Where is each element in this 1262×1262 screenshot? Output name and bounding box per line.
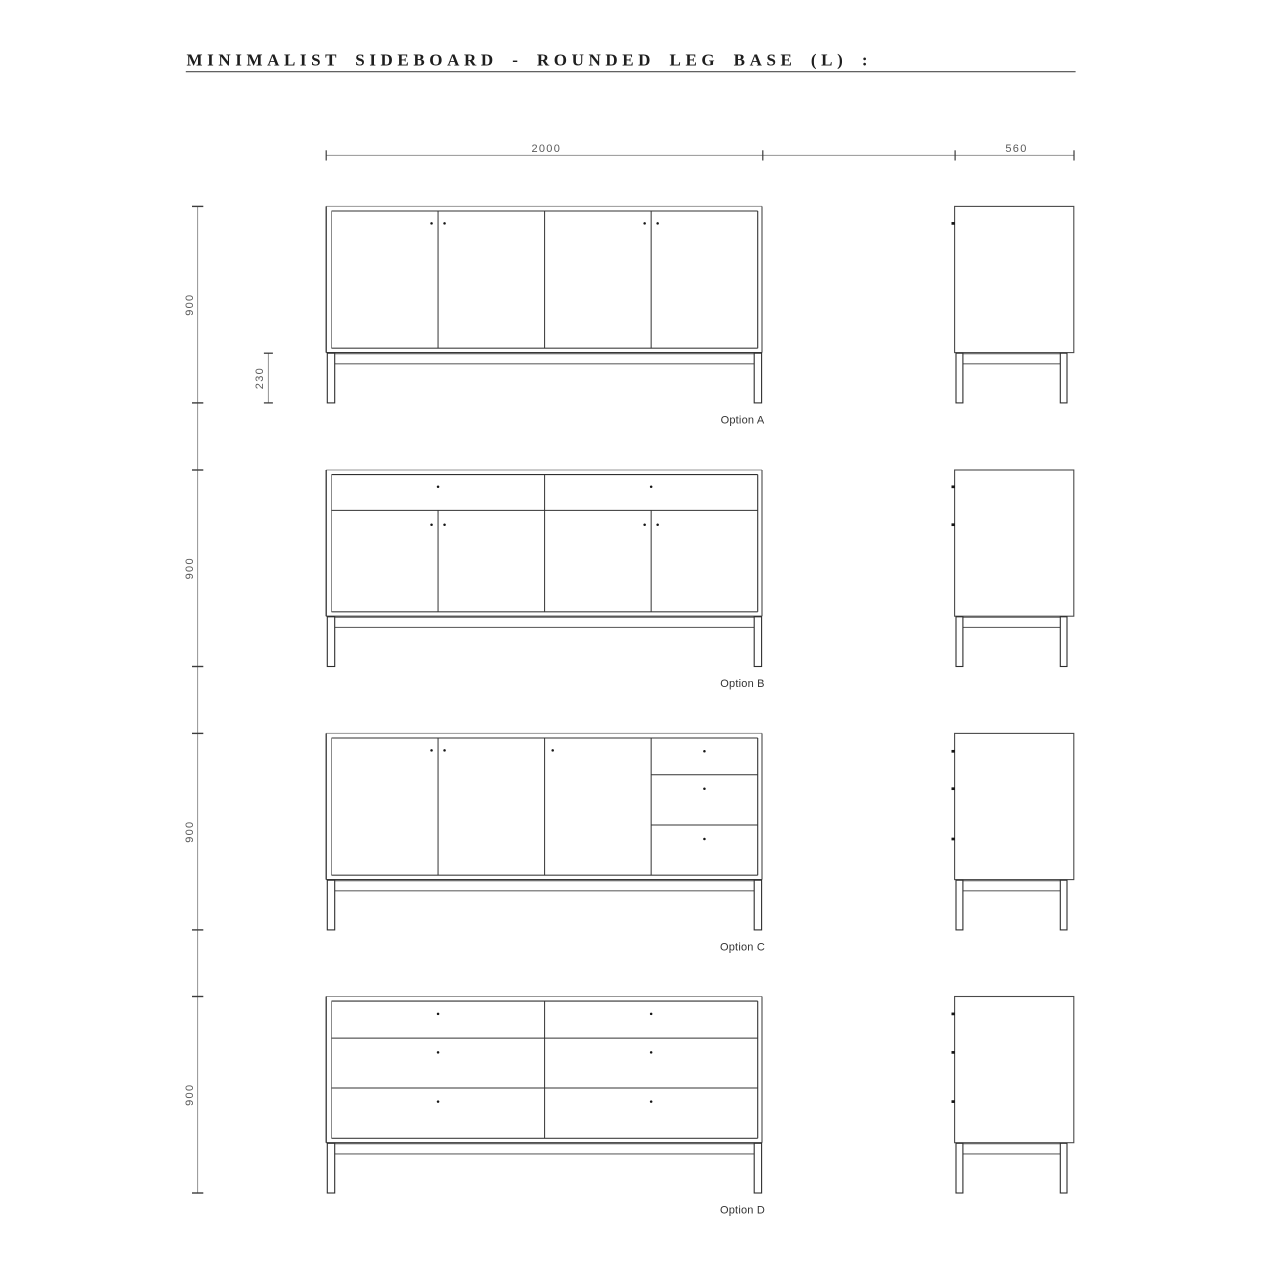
- svg-text:230: 230: [254, 367, 266, 389]
- svg-text:900: 900: [184, 821, 196, 843]
- svg-text:560: 560: [1005, 143, 1027, 155]
- svg-text:900: 900: [184, 1084, 196, 1106]
- svg-text:2000: 2000: [531, 143, 561, 155]
- svg-text:MINIMALIST SIDEBOARD - ROUNDED: MINIMALIST SIDEBOARD - ROUNDED LEG BASE …: [187, 51, 873, 70]
- svg-text:Option C: Option C: [720, 942, 765, 954]
- svg-text:900: 900: [184, 294, 196, 316]
- svg-text:Option D: Option D: [720, 1205, 765, 1217]
- svg-text:900: 900: [184, 557, 196, 579]
- svg-text:Option B: Option B: [720, 678, 764, 690]
- svg-text:Option A: Option A: [721, 415, 765, 427]
